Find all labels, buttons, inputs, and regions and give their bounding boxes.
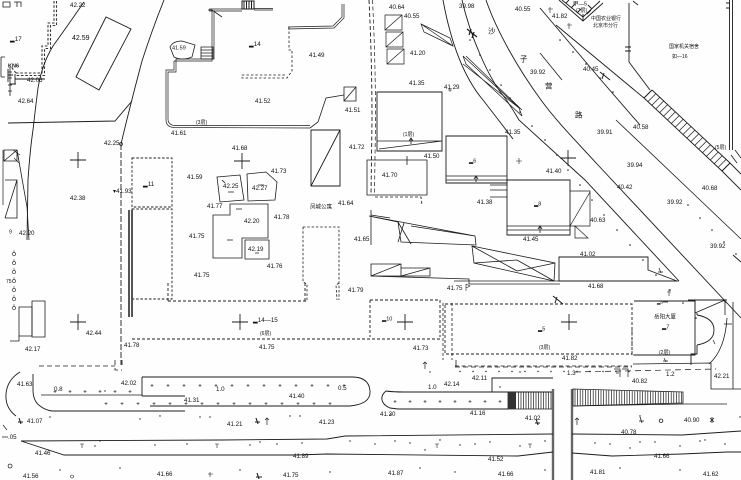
- svg-text:41.78: 41.78: [274, 214, 290, 221]
- svg-text:41.79: 41.79: [348, 287, 364, 294]
- svg-text:41.75: 41.75: [189, 233, 205, 240]
- svg-text:41.77: 41.77: [207, 203, 223, 210]
- svg-text:41.38: 41.38: [477, 199, 493, 206]
- svg-text:40.55: 40.55: [404, 13, 420, 20]
- svg-text:41.20: 41.20: [410, 50, 426, 57]
- svg-text:▂17: ▂17: [9, 36, 22, 43]
- svg-text:0.5: 0.5: [338, 385, 347, 392]
- svg-text:41.30: 41.30: [380, 411, 396, 418]
- svg-text:0.8: 0.8: [54, 386, 63, 393]
- svg-text:(3层): (3层): [539, 345, 550, 351]
- svg-text:41.89: 41.89: [293, 453, 309, 460]
- svg-text:.05: .05: [8, 434, 17, 441]
- svg-text:41.75: 41.75: [259, 344, 275, 351]
- svg-text:41.66: 41.66: [654, 453, 670, 460]
- svg-text:▂8: ▂8: [533, 202, 541, 208]
- svg-text:41.40: 41.40: [546, 168, 562, 175]
- svg-text:凤城公寓: 凤城公寓: [310, 203, 333, 211]
- svg-text:41.02: 41.02: [580, 251, 596, 258]
- svg-text:41.16: 41.16: [470, 410, 486, 417]
- svg-text:41.70: 41.70: [382, 172, 398, 179]
- svg-text:39.94: 39.94: [627, 162, 643, 169]
- svg-text:41.07: 41.07: [27, 418, 43, 425]
- svg-text:子: 子: [520, 55, 528, 64]
- svg-text:41.65: 41.65: [354, 236, 370, 243]
- svg-text:9: 9: [9, 230, 12, 236]
- svg-text:41.62: 41.62: [703, 471, 719, 478]
- svg-text:41.52: 41.52: [255, 98, 271, 105]
- svg-text:42.20: 42.20: [19, 230, 35, 237]
- svg-text:39.91: 39.91: [597, 129, 613, 136]
- svg-text:KN6: KN6: [8, 64, 19, 70]
- svg-text:40.42: 40.42: [617, 184, 633, 191]
- svg-text:75: 75: [6, 279, 12, 285]
- svg-text:国家机关宿舍: 国家机关宿舍: [669, 43, 699, 50]
- svg-text:41.29: 41.29: [444, 84, 460, 91]
- svg-text:41.46: 41.46: [35, 450, 51, 457]
- svg-text:41.68: 41.68: [232, 145, 248, 152]
- svg-text:1.2: 1.2: [666, 371, 675, 378]
- svg-text:42.44: 42.44: [86, 330, 102, 337]
- svg-text:41.87: 41.87: [388, 470, 404, 477]
- svg-text:41.31: 41.31: [184, 397, 200, 404]
- svg-text:41.02: 41.02: [525, 415, 541, 422]
- svg-text:(5层): (5层): [715, 145, 726, 151]
- svg-text:41.35: 41.35: [505, 129, 521, 136]
- svg-text:(1层): (1层): [403, 132, 414, 138]
- svg-text:▂14: ▂14: [248, 41, 261, 48]
- svg-text:中国农业银行: 中国农业银行: [591, 15, 621, 22]
- svg-text:▂11: ▂11: [142, 181, 155, 188]
- svg-text:41.35: 41.35: [409, 80, 425, 87]
- svg-text:40.64: 40.64: [389, 4, 405, 11]
- svg-text:(2层): (2层): [659, 350, 670, 356]
- svg-text:41.66: 41.66: [498, 471, 514, 478]
- svg-text:40.90: 40.90: [684, 417, 700, 424]
- svg-text:41.59: 41.59: [172, 46, 186, 52]
- svg-text:41.66: 41.66: [157, 471, 173, 478]
- svg-text:(3层): (3层): [196, 120, 207, 126]
- svg-text:42.64: 42.64: [18, 98, 34, 105]
- svg-text:40.45: 40.45: [583, 66, 599, 73]
- svg-text:岳阳大厦: 岳阳大厦: [654, 313, 677, 321]
- svg-text:42.27: 42.27: [252, 185, 268, 192]
- svg-text:41.52: 41.52: [488, 456, 504, 463]
- svg-text:41.82: 41.82: [562, 355, 578, 362]
- svg-text:41.45: 41.45: [523, 236, 539, 243]
- svg-text:营: 营: [545, 81, 553, 91]
- svg-text:如—16: 如—16: [672, 53, 688, 60]
- svg-text:(6层): (6层): [260, 331, 271, 337]
- svg-text:41.64: 41.64: [338, 200, 354, 207]
- svg-text:40.68: 40.68: [702, 185, 718, 192]
- svg-text:41.75: 41.75: [447, 285, 463, 292]
- svg-text:▂14—15: ▂14—15: [252, 317, 278, 324]
- svg-text:(7层): (7层): [576, 8, 587, 14]
- svg-text:42.22: 42.22: [70, 2, 86, 9]
- svg-text:42.02: 42.02: [121, 380, 137, 387]
- svg-text:41.61: 41.61: [171, 130, 187, 137]
- svg-text:42.20: 42.20: [244, 218, 260, 225]
- svg-text:40.82: 40.82: [632, 378, 648, 385]
- svg-text:42.17: 42.17: [25, 346, 41, 353]
- svg-text:▂7: ▂7: [661, 325, 669, 331]
- svg-text:41.56: 41.56: [23, 473, 39, 480]
- svg-text:41.72: 41.72: [349, 144, 365, 151]
- svg-text:42.06: 42.06: [27, 77, 43, 84]
- svg-text:北京市分行: 北京市分行: [593, 22, 618, 29]
- svg-text:40.78: 40.78: [621, 429, 637, 436]
- svg-text:41.82: 41.82: [552, 13, 568, 20]
- svg-text:41.40: 41.40: [289, 393, 305, 400]
- svg-text:41.49: 41.49: [309, 52, 325, 59]
- svg-text:40.58: 40.58: [633, 124, 649, 131]
- svg-text:41.81: 41.81: [590, 469, 606, 476]
- svg-text:39.92: 39.92: [667, 199, 683, 206]
- svg-text:甲—5: 甲—5: [573, 1, 587, 8]
- svg-text:42.21: 42.21: [714, 373, 730, 380]
- svg-text:41.78: 41.78: [124, 342, 140, 349]
- svg-text:40.55: 40.55: [515, 6, 531, 13]
- svg-text:41.75: 41.75: [194, 272, 210, 279]
- svg-text:41.51: 41.51: [345, 107, 361, 114]
- svg-text:42.59: 42.59: [72, 35, 90, 42]
- svg-text:1.0: 1.0: [428, 384, 437, 391]
- svg-text:路: 路: [575, 110, 583, 120]
- svg-text:▂10: ▂10: [381, 317, 392, 323]
- svg-text:▾41.93: ▾41.93: [113, 188, 132, 195]
- svg-text:41.73: 41.73: [413, 345, 429, 352]
- svg-text:39.92: 39.92: [710, 243, 726, 250]
- svg-text:1.0: 1.0: [216, 386, 225, 393]
- svg-text:41.63: 41.63: [17, 381, 33, 388]
- svg-text:1.3: 1.3: [567, 370, 576, 377]
- svg-text:41.23: 41.23: [319, 419, 335, 426]
- svg-text:42.19: 42.19: [248, 246, 264, 253]
- svg-text:42.25: 42.25: [104, 140, 120, 147]
- svg-text:42.14: 42.14: [444, 381, 460, 388]
- svg-text:41.59: 41.59: [187, 174, 203, 181]
- svg-text:41.68: 41.68: [588, 283, 604, 290]
- svg-text:41.75: 41.75: [283, 472, 299, 479]
- svg-text:39.98: 39.98: [459, 3, 475, 10]
- svg-text:沙: 沙: [488, 27, 496, 36]
- svg-text:41.21: 41.21: [227, 421, 243, 428]
- svg-text:41.73: 41.73: [271, 168, 287, 175]
- svg-text:41.50: 41.50: [424, 153, 440, 160]
- svg-text:39.92: 39.92: [530, 69, 546, 76]
- svg-text:▂5: ▂5: [537, 327, 545, 333]
- svg-text:42.25: 42.25: [223, 183, 239, 190]
- svg-text:42.11: 42.11: [472, 375, 488, 382]
- svg-text:40.63: 40.63: [590, 217, 606, 224]
- svg-text:41.76: 41.76: [267, 263, 283, 270]
- svg-text:42.38: 42.38: [70, 195, 86, 202]
- svg-text:▂6: ▂6: [468, 159, 476, 165]
